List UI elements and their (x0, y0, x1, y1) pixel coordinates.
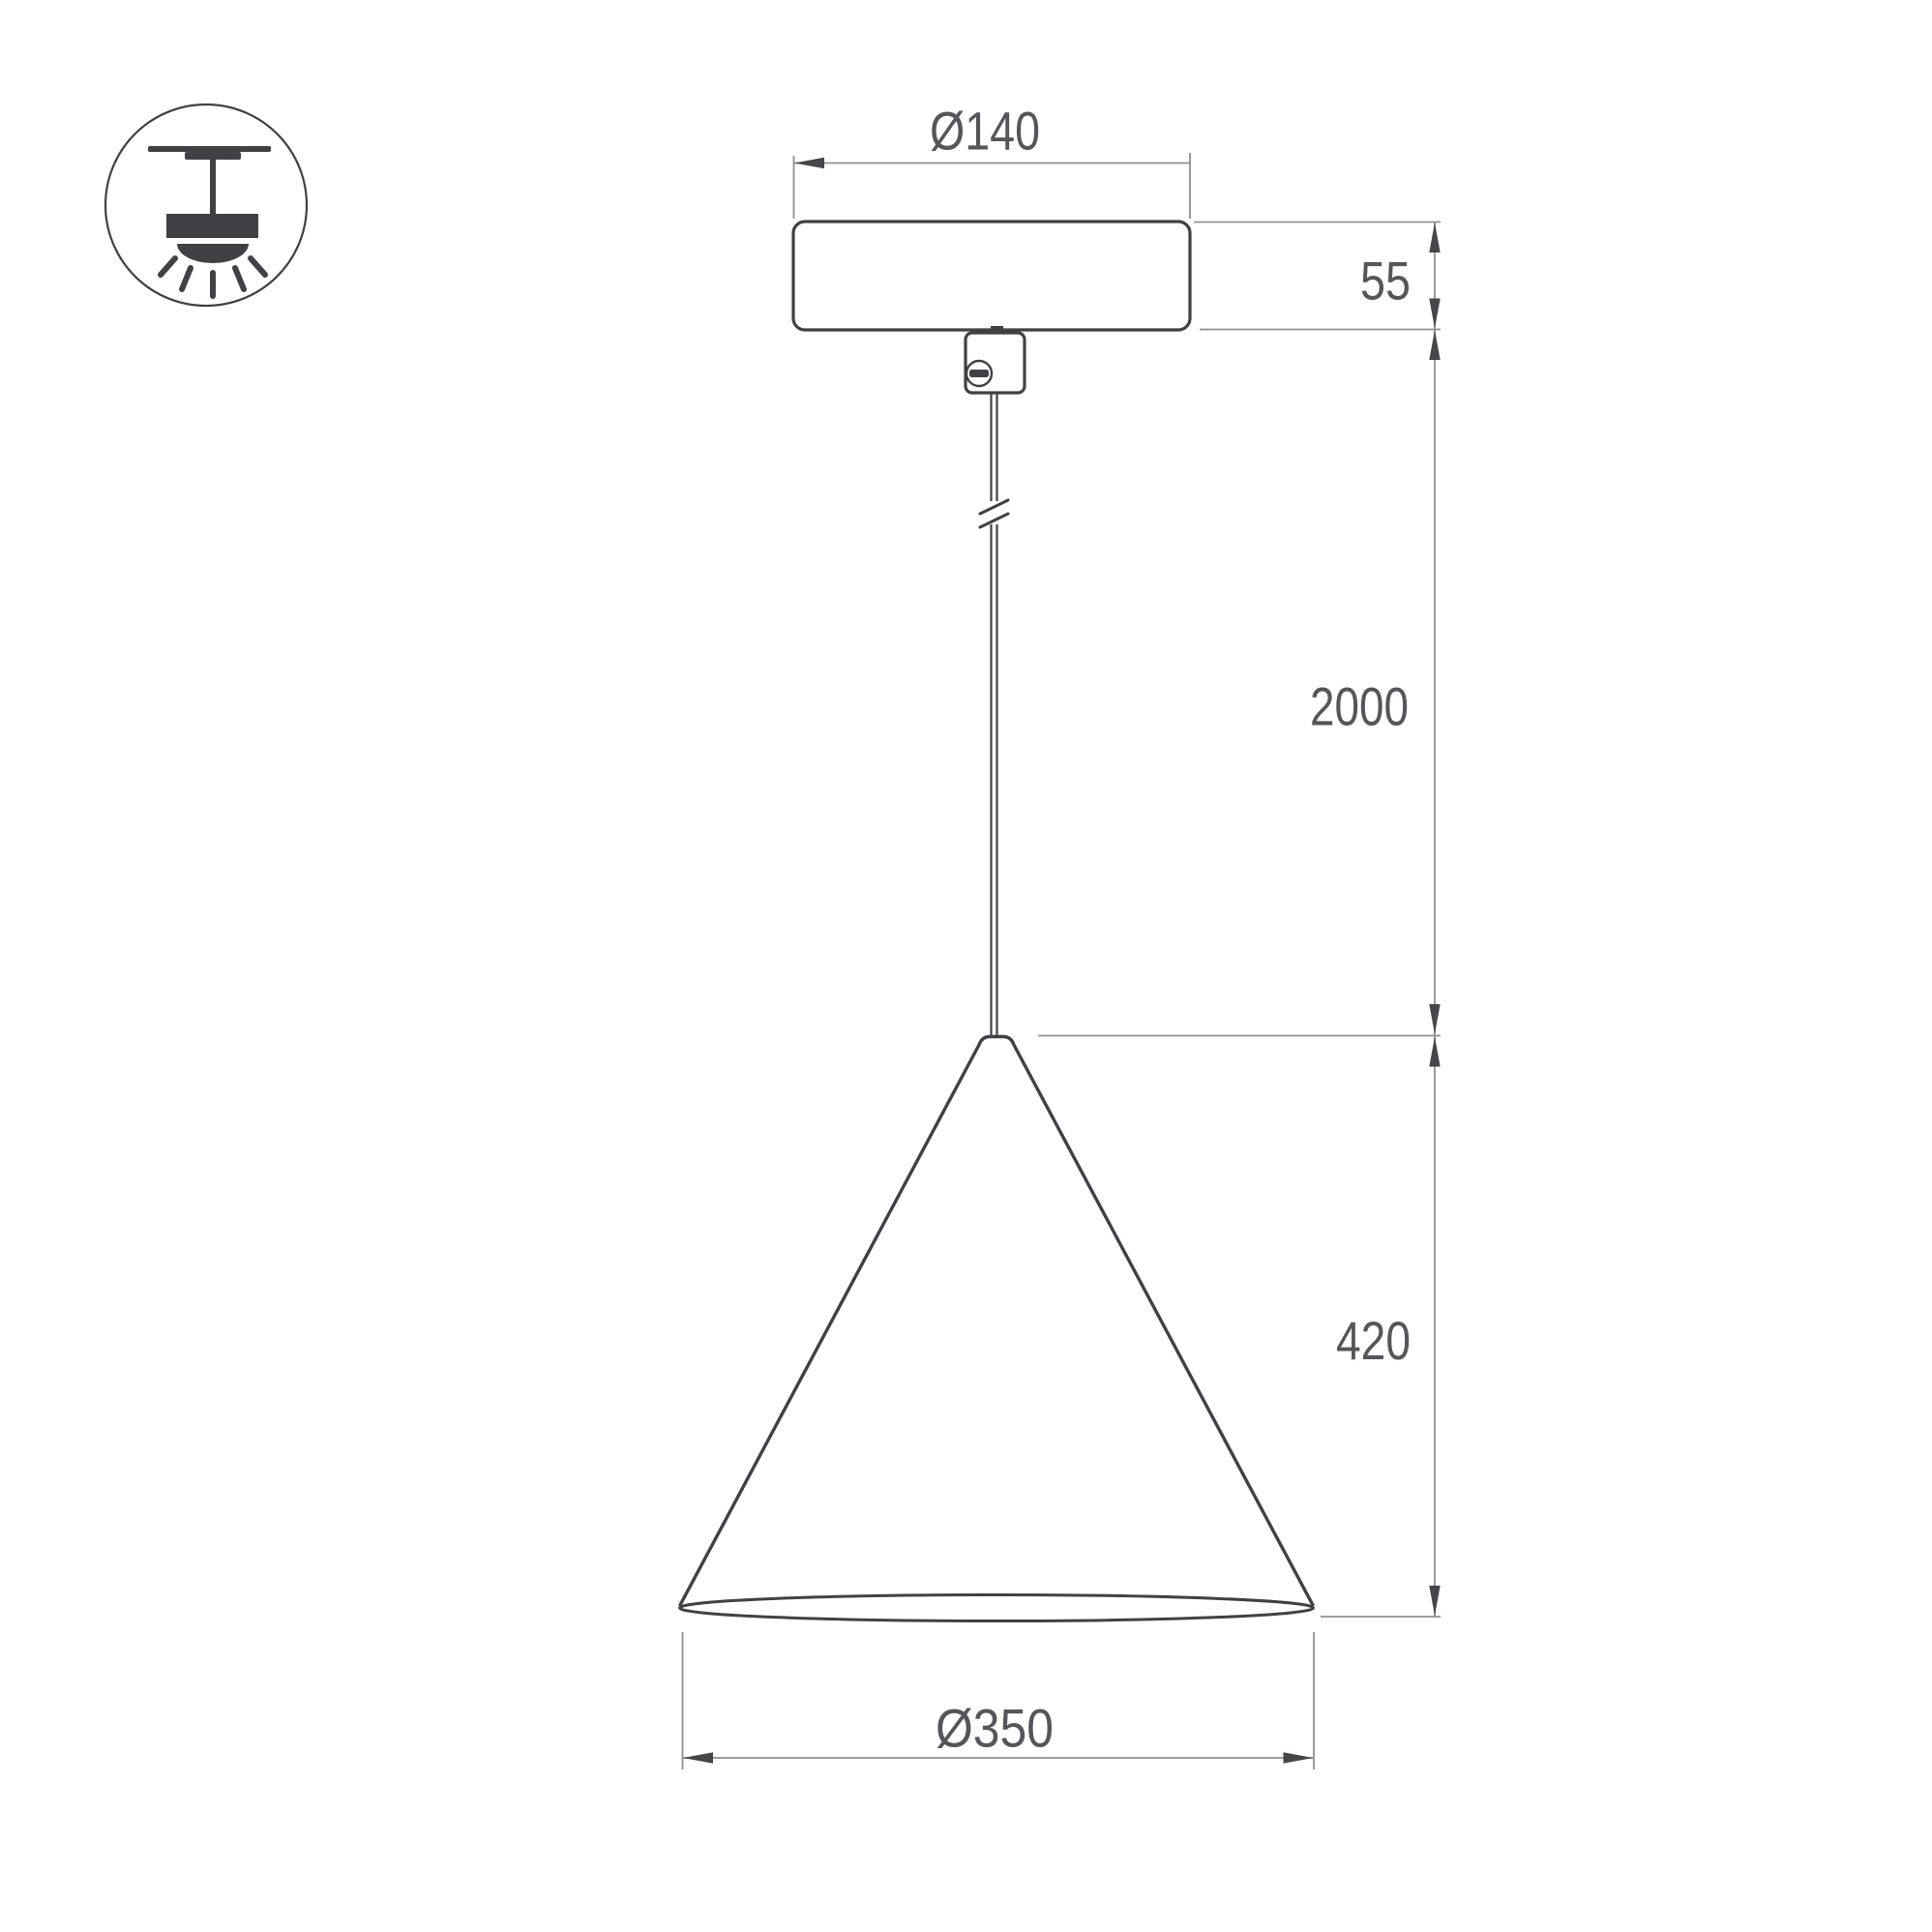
dimension-canopy-diameter: Ø140 (794, 101, 1191, 220)
arrow-down-icon (1429, 299, 1440, 329)
icon-light-rays-icon (161, 258, 265, 296)
dimension-label: Ø350 (936, 1698, 1054, 1759)
dimension-shade-height: 420 (1321, 1037, 1441, 1618)
dimension-label: 420 (1336, 1310, 1411, 1371)
wire-break-mark (980, 500, 1008, 527)
dimension-label: 55 (1360, 251, 1411, 312)
dimension-label: 2000 (1310, 676, 1409, 737)
icon-ceiling-line (148, 146, 271, 152)
dimension-label: Ø140 (930, 101, 1040, 162)
shade-outline (680, 1037, 1314, 1607)
arrow-left-icon (683, 1752, 713, 1764)
dimension-shade-diameter: Ø350 (683, 1632, 1315, 1769)
icon-lamp-body (166, 214, 258, 238)
shade-rim (680, 1595, 1314, 1621)
pendant-mount-icon (105, 104, 307, 306)
canopy-outline (793, 222, 1190, 330)
arrow-down-icon (1429, 1586, 1440, 1616)
pendant-lamp-drawing (680, 222, 1314, 1621)
technical-drawing-canvas: Ø140 55 2000 420 Ø350 (0, 0, 1932, 1932)
arrow-left-icon (794, 158, 824, 169)
icon-lamp-dome (177, 244, 249, 263)
icon-canopy-bar (185, 152, 241, 160)
icon-circle-border (105, 104, 307, 306)
dimension-suspension-length: 2000 (1038, 330, 1441, 1036)
arrow-up-icon (1429, 330, 1440, 360)
suspension-wire (992, 393, 997, 1036)
arrow-down-icon (1429, 1004, 1440, 1034)
arrow-up-icon (1429, 223, 1440, 253)
icon-stem (210, 160, 216, 216)
arrow-right-icon (1284, 1752, 1314, 1764)
screw-slot (969, 370, 989, 377)
dimension-canopy-height: 55 (1194, 223, 1441, 330)
arrow-up-icon (1429, 1037, 1440, 1067)
